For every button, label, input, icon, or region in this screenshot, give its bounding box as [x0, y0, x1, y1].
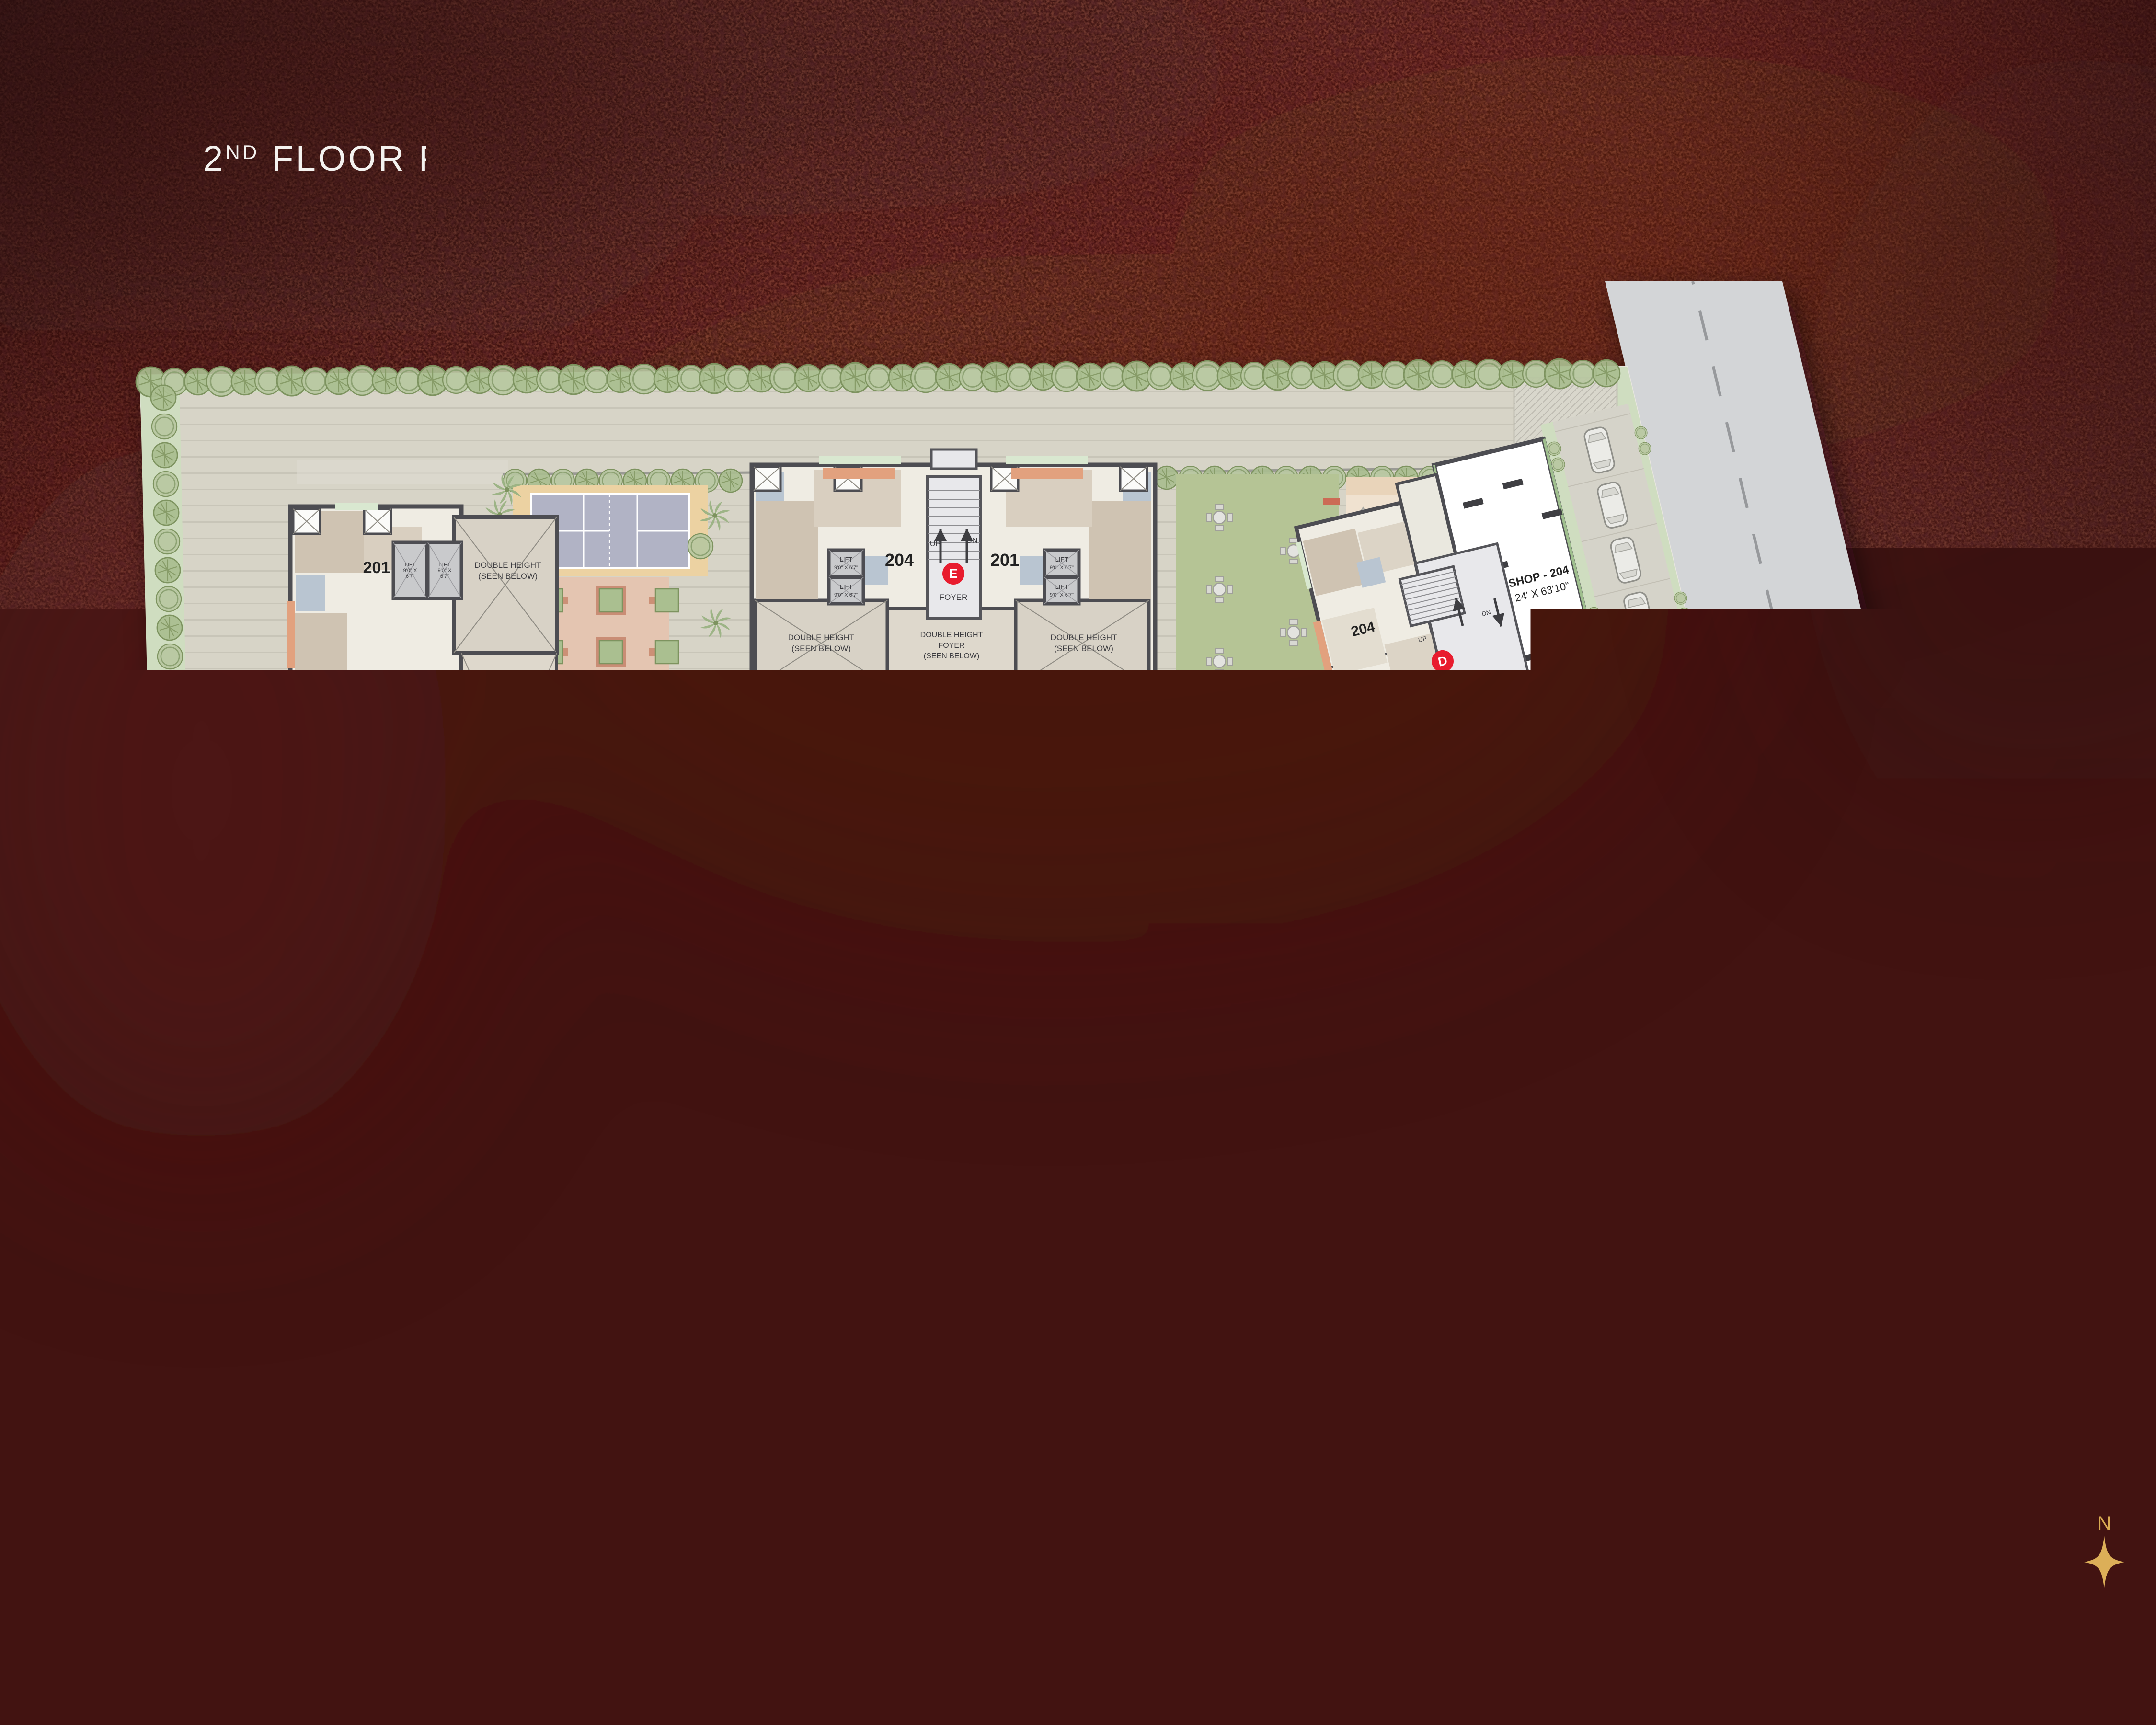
svg-text:1342.00 SQ.FT.: 1342.00 SQ.FT. — [693, 1181, 750, 1190]
svg-text:LIFT: LIFT — [1055, 583, 1068, 590]
svg-text:FOYER: FOYER — [411, 765, 439, 774]
svg-text:9'0" X: 9'0" X — [403, 568, 417, 574]
svg-text:18.00 MT . WIDE T .P. ROAD: 18.00 MT . WIDE T .P. ROAD — [853, 1403, 1103, 1424]
svg-text:TERRACE: TERRACE — [298, 1111, 333, 1119]
svg-text:725.00 SQ.FT.: 725.00 SQ.FT. — [1310, 1069, 1363, 1078]
svg-text:UP: UP — [930, 540, 940, 548]
svg-text:DOUBLE: DOUBLE — [493, 775, 525, 783]
svg-text:9'0" X 6'7": 9'0" X 6'7" — [834, 592, 858, 598]
svg-text:LIFT: LIFT — [1055, 556, 1068, 563]
svg-text:(SEEN BELOW): (SEEN BELOW) — [478, 572, 538, 581]
svg-text:DN: DN — [966, 537, 977, 545]
svg-text:9'0" X 6'7": 9'0" X 6'7" — [574, 1110, 598, 1116]
svg-text:9'0" X 6'7": 9'0" X 6'7" — [359, 1138, 383, 1144]
svg-text:6'7": 6'7" — [440, 848, 449, 853]
svg-text:TERRACE: TERRACE — [298, 1127, 333, 1136]
svg-text:LIFT: LIFT — [1147, 1101, 1160, 1108]
svg-text:FOYER: FOYER — [940, 593, 968, 602]
svg-text:6'7": 6'7" — [406, 574, 414, 579]
svg-text:201: 201 — [990, 550, 1019, 570]
svg-text:F: F — [421, 739, 428, 754]
svg-text:DN: DN — [486, 1082, 496, 1091]
svg-text:(SEEN BELOW): (SEEN BELOW) — [478, 926, 538, 935]
svg-text:LIFT: LIFT — [931, 1101, 944, 1108]
svg-text:9'0" X 6'7": 9'0" X 6'7" — [834, 565, 858, 571]
svg-text:UP: UP — [374, 770, 384, 779]
svg-text:(SEEN BELOW): (SEEN BELOW) — [924, 652, 979, 660]
svg-text:HEIGHT: HEIGHT — [494, 785, 524, 793]
svg-text:9'0" X 6'7": 9'0" X 6'7" — [1141, 1110, 1165, 1116]
svg-text:(SEEN BELOW): (SEEN BELOW) — [1054, 644, 1113, 653]
svg-text:FOYER: FOYER — [495, 796, 522, 804]
svg-text:TERRACE: TERRACE — [1317, 1170, 1355, 1179]
svg-text:DN: DN — [374, 740, 385, 748]
svg-text:TERRACE: TERRACE — [1251, 1111, 1285, 1119]
svg-text:UP: UP — [459, 1082, 469, 1091]
svg-text:LIFT: LIFT — [580, 1129, 593, 1136]
svg-text:9'0" X 6'7": 9'0" X 6'7" — [926, 1110, 950, 1116]
svg-text:LIFT: LIFT — [439, 562, 450, 568]
svg-text:UP: UP — [1026, 1082, 1036, 1091]
svg-text:9'0" X: 9'0" X — [403, 842, 417, 848]
svg-text:201: 201 — [363, 559, 390, 577]
svg-text:1342.00 SQ.FT.: 1342.00 SQ.FT. — [1307, 1181, 1365, 1190]
svg-text:204: 204 — [369, 821, 396, 839]
svg-text:LIFT: LIFT — [1147, 1129, 1160, 1136]
svg-text:TERRACE: TERRACE — [702, 1170, 741, 1179]
svg-text:DOUBLE HEIGHT: DOUBLE HEIGHT — [475, 561, 541, 570]
svg-text:204: 204 — [409, 1098, 436, 1116]
svg-text:TERRACE: TERRACE — [787, 1058, 826, 1067]
svg-text:1342.00 SQ.FT.: 1342.00 SQ.FT. — [778, 1181, 835, 1190]
svg-text:203: 203 — [975, 1136, 1003, 1154]
svg-text:DOUBLE HEIGHT: DOUBLE HEIGHT — [475, 915, 541, 924]
svg-text:9'0" X 6'7": 9'0" X 6'7" — [574, 1138, 598, 1144]
svg-text:LIFT: LIFT — [439, 836, 450, 842]
svg-text:DN: DN — [1053, 1082, 1063, 1091]
svg-text:LIFT: LIFT — [365, 1129, 378, 1136]
svg-text:9'0" X: 9'0" X — [438, 842, 452, 848]
svg-text:LIFT: LIFT — [405, 562, 416, 568]
svg-text:DOUBLE HEIGHT: DOUBLE HEIGHT — [788, 633, 855, 642]
svg-text:LIFT: LIFT — [931, 1129, 944, 1136]
svg-text:6'7": 6'7" — [440, 574, 449, 579]
svg-text:725.00 SQ.FT.: 725.00 SQ.FT. — [695, 1069, 748, 1078]
svg-text:TERRACE: TERRACE — [702, 1058, 741, 1067]
svg-text:FOYER: FOYER — [463, 1133, 491, 1142]
svg-text:TERRACE: TERRACE — [1251, 1127, 1285, 1136]
svg-text:DOUBLE HEIGHT: DOUBLE HEIGHT — [1051, 633, 1117, 642]
svg-text:(SEEN BELOW): (SEEN BELOW) — [791, 644, 851, 653]
svg-text:9'0" X 6'7": 9'0" X 6'7" — [1050, 592, 1074, 598]
svg-text:DOUBLE HEIGHT: DOUBLE HEIGHT — [920, 631, 983, 639]
svg-text:LIFT: LIFT — [840, 556, 853, 563]
svg-text:9'0" X 6'7": 9'0" X 6'7" — [1050, 565, 1074, 571]
svg-text:9'0" X 6'7": 9'0" X 6'7" — [359, 1110, 383, 1116]
svg-text:9'0" X 6'7": 9'0" X 6'7" — [926, 1138, 950, 1144]
svg-text:LIFT: LIFT — [580, 1101, 593, 1108]
svg-text:6'7": 6'7" — [406, 848, 414, 853]
svg-text:LIFT: LIFT — [365, 1101, 378, 1108]
svg-text:E: E — [949, 566, 958, 581]
svg-text:204: 204 — [975, 1098, 1003, 1116]
svg-text:B: B — [1039, 1108, 1048, 1122]
svg-text:201: 201 — [1091, 1098, 1118, 1116]
svg-text:203: 203 — [409, 1136, 436, 1154]
svg-text:LIFT: LIFT — [405, 836, 416, 842]
svg-text:LIFT: LIFT — [840, 583, 853, 590]
svg-text:204: 204 — [885, 550, 914, 570]
svg-text:9'0" X: 9'0" X — [438, 568, 452, 574]
svg-text:202: 202 — [1091, 1136, 1118, 1154]
svg-text:9'0" X 6'7": 9'0" X 6'7" — [1141, 1138, 1165, 1144]
svg-text:A: A — [472, 1108, 481, 1122]
svg-text:201: 201 — [524, 1098, 551, 1116]
svg-text:N: N — [2098, 1513, 2111, 1534]
svg-text:725.00 SQ.FT.: 725.00 SQ.FT. — [780, 1069, 833, 1078]
svg-text:202: 202 — [524, 1136, 551, 1154]
svg-text:TERRACE: TERRACE — [1317, 1058, 1355, 1067]
svg-text:TERRACE: TERRACE — [787, 1170, 826, 1179]
svg-text:FOYER: FOYER — [938, 642, 964, 650]
svg-text:FOYER: FOYER — [1030, 1133, 1058, 1142]
